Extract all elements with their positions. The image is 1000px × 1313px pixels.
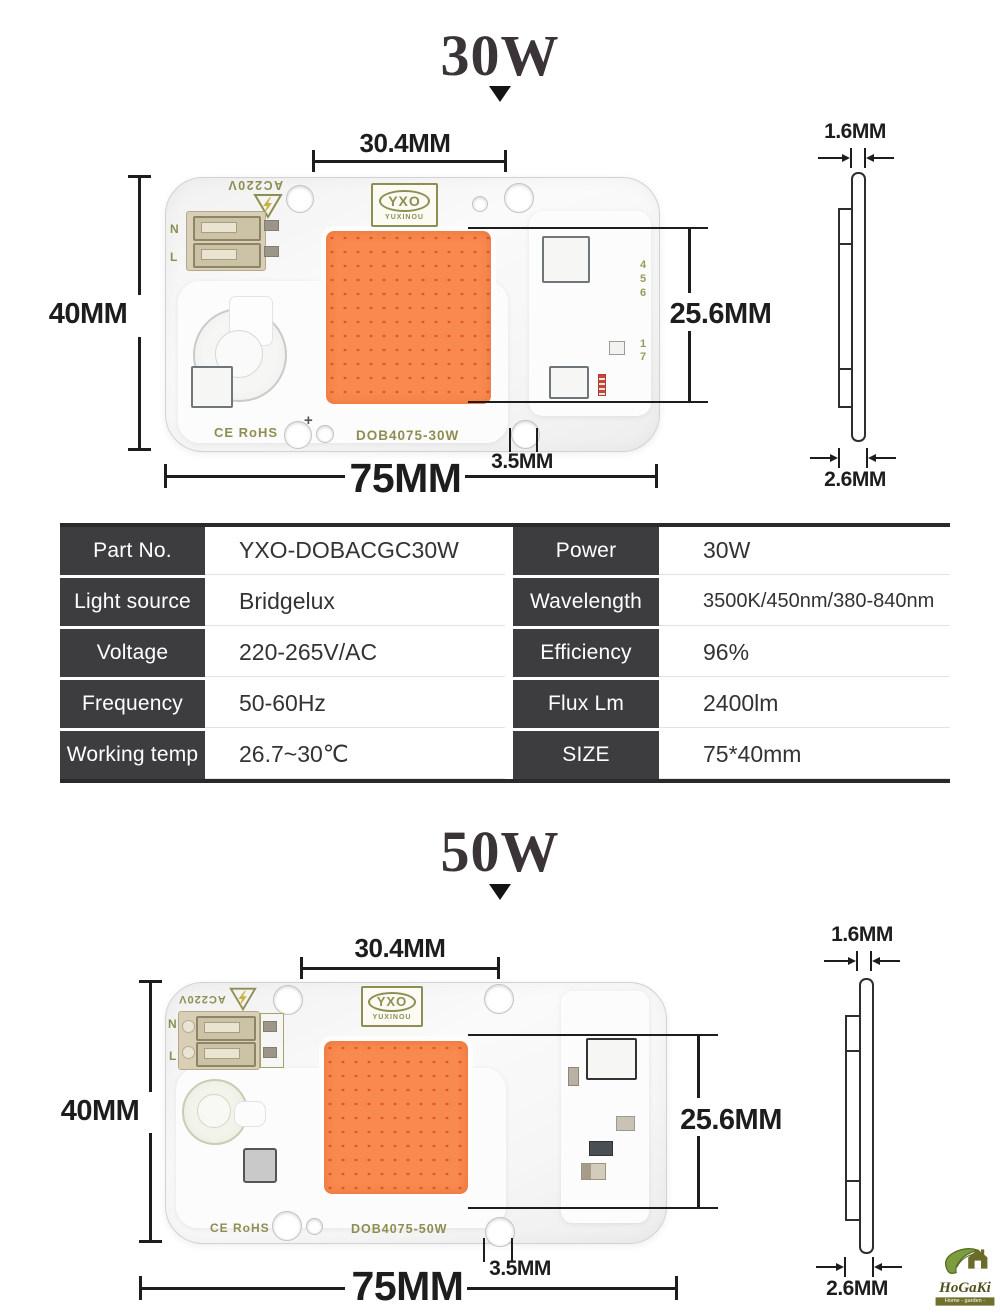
dim-line-bottom [139, 1287, 345, 1290]
dim-label-30-4mm: 30.4MM [325, 933, 475, 964]
high-voltage-triangle-icon [228, 986, 258, 1012]
dim-leader-top [468, 227, 708, 229]
dim-line-bottom [164, 475, 345, 478]
digit: 7 [636, 351, 650, 364]
component-chip [542, 236, 590, 283]
terminal-metal-tab [204, 1048, 240, 1059]
spec-label: Efficiency [513, 629, 659, 677]
digit: 1 [636, 338, 650, 351]
side-view-pcb [851, 172, 866, 442]
digit: 4 [636, 258, 650, 272]
terminal-pin [264, 220, 279, 231]
mounting-hole [286, 185, 314, 213]
brand-tagline: Home - garden - kitchen [936, 1297, 995, 1305]
resistor-component [598, 374, 606, 396]
spec-label: Power [513, 527, 659, 575]
dim-label-1-6mm: 1.6MM [815, 120, 895, 144]
terminal-slot [193, 216, 261, 241]
dim-line-top [300, 967, 500, 970]
dim-label-25-6mm: 25.6MM [656, 1104, 806, 1137]
dim-line-right [688, 331, 691, 403]
terminal-block [178, 1011, 260, 1070]
terminal-wire-hole [182, 1020, 195, 1033]
table-row: Part No. YXO-DOBACGC30W Power 30W [60, 527, 950, 575]
table-row: Light source Bridgelux Wavelength 3500K/… [60, 578, 950, 626]
small-hole [472, 196, 488, 212]
section-title-50w: 50W [350, 818, 650, 885]
part-number-marking: DOB4075-50W [351, 1222, 447, 1236]
terminal-metal-tab [201, 249, 237, 260]
part-number-marking: DOB4075-30W [356, 428, 459, 443]
component-chip [586, 1038, 637, 1080]
small-hole [306, 1218, 323, 1235]
small-component [581, 1163, 606, 1180]
capacitor-top [197, 1094, 231, 1128]
dim-arrows-bottom [816, 1257, 902, 1277]
dim-leader-bottom [468, 401, 708, 403]
dim-tick [312, 150, 315, 172]
component-chip [549, 366, 589, 399]
dim-label-2-6mm: 2.6MM [812, 1277, 902, 1301]
dim-tick [497, 957, 500, 979]
table-row: Frequency 50-60Hz Flux Lm 2400lm [60, 680, 950, 728]
yxo-logo: YXO YUXINOU [371, 183, 438, 227]
spec-label: Wavelength [513, 578, 659, 626]
digit: 5 [636, 272, 650, 286]
dim-label-40mm: 40MM [40, 298, 136, 331]
terminal-slot [196, 1042, 256, 1067]
dim-line-left [149, 1133, 152, 1242]
led-board-30w: AC220V N L YXO YUXINOU [165, 177, 660, 452]
yuxinou-logo-subtext: YUXINOU [373, 1014, 412, 1021]
dim-line-right [697, 1136, 700, 1209]
table-gap [505, 578, 513, 626]
component-chip [243, 1148, 277, 1183]
spec-label: Flux Lm [513, 680, 659, 728]
terminal-slot [196, 1016, 256, 1041]
mounting-hole [504, 183, 534, 213]
terminal-l-label: L [170, 250, 177, 264]
spec-label: Working temp [60, 731, 205, 779]
dim-line-left [149, 980, 152, 1092]
terminal-block [186, 211, 266, 271]
brand-name: HoGaKi [930, 1280, 1000, 1296]
component-chip [191, 366, 233, 408]
spec-label: Voltage [60, 629, 205, 677]
table-gap [505, 527, 513, 575]
dim-leader-bottom [468, 1207, 718, 1209]
spec-value: 50-60Hz [205, 680, 505, 728]
dim-bracket [536, 428, 538, 452]
small-component [609, 341, 625, 355]
terminal-wire-hole [182, 1046, 195, 1059]
led-board-50w: AC220V N L YXO YUXINOU [165, 982, 667, 1244]
spec-label: Part No. [60, 527, 205, 575]
dim-label-75mm: 75MM [350, 1263, 465, 1310]
yuxinou-logo-subtext: YUXINOU [385, 214, 424, 221]
mounting-hole [484, 984, 514, 1014]
terminal-l-label: L [169, 1049, 176, 1063]
terminal-n-label: N [170, 222, 179, 236]
product-spec-sheet: 30W 30.4MM 40MM AC220V N L [0, 0, 1000, 1313]
table-gap [505, 629, 513, 677]
yxo-logo-text: YXO [368, 992, 416, 1012]
spec-label: SIZE [513, 731, 659, 779]
figure-50w: 30.4MM 40MM AC220V N L [0, 905, 1000, 1313]
terminal-pin [264, 246, 279, 257]
dim-line-right [688, 227, 691, 293]
down-arrow-icon [489, 884, 511, 900]
silkscreen-ac220v: AC220V [176, 993, 228, 1005]
spec-table: Part No. YXO-DOBACGC30W Power 30W Light … [60, 523, 950, 783]
cob-led-emitter [326, 231, 491, 404]
ce-rohs-marking: CE RoHS [210, 1221, 270, 1235]
dim-arrows-bottom [810, 448, 896, 468]
spec-value: 2400lm [659, 680, 950, 728]
spec-value: YXO-DOBACGC30W [205, 527, 505, 575]
dim-bracket [509, 428, 511, 452]
down-arrow-icon [489, 86, 511, 102]
terminal-pin [263, 1047, 277, 1058]
dim-cap [139, 1240, 162, 1243]
silkscreen-ac220v: AC220V [218, 178, 292, 192]
spec-value: 30W [659, 527, 950, 575]
small-component [568, 1067, 579, 1086]
spec-value: 96% [659, 629, 950, 677]
dim-line-bottom [467, 1287, 678, 1290]
terminal-metal-tab [204, 1022, 240, 1033]
dim-arrows-top [824, 951, 900, 971]
yxo-logo-text: YXO [379, 190, 430, 212]
dim-label-3-5mm: 3.5MM [482, 450, 562, 474]
silkscreen-digits-17: 1 7 [636, 338, 650, 364]
mounting-hole [273, 985, 303, 1015]
spec-value: 3500K/450nm/380-840nm [659, 578, 950, 626]
small-component [616, 1116, 635, 1131]
spec-value: 26.7~30℃ [205, 731, 505, 779]
dim-label-25-6mm: 25.6MM [648, 298, 793, 331]
table-gap [505, 731, 513, 779]
leaf-house-icon [941, 1243, 989, 1275]
dim-tick [300, 957, 303, 979]
dim-arrows-top [818, 148, 894, 168]
terminal-slot [193, 243, 261, 268]
cob-led-emitter [324, 1041, 468, 1194]
dim-tick [655, 464, 658, 488]
yxo-logo: YXO YUXINOU [361, 986, 423, 1027]
mounting-hole [284, 421, 312, 449]
dim-line-right [697, 1034, 700, 1098]
table-row: Voltage 220-265V/AC Efficiency 96% [60, 629, 950, 677]
figure-30w: 30.4MM 40MM AC220V N L [0, 110, 1000, 520]
small-component [589, 1141, 613, 1156]
dim-line-bottom [465, 475, 657, 478]
dim-label-30-4mm: 30.4MM [330, 128, 480, 159]
side-view-pcb [859, 978, 874, 1254]
mounting-hole [272, 1211, 302, 1241]
silkscreen-digits-456: 4 5 6 [636, 258, 650, 300]
ce-rohs-marking: CE RoHS [214, 425, 278, 440]
dim-label-75mm: 75MM [348, 455, 463, 502]
section-title-30w: 30W [350, 22, 650, 89]
capacitor-handle [234, 1101, 266, 1127]
table-row: Working temp 26.7~30℃ SIZE 75*40mm [60, 731, 950, 779]
hogaki-logo: HoGaKi Home - garden - kitchen [930, 1243, 1000, 1309]
dim-cap [128, 448, 151, 451]
dim-tick [675, 1276, 678, 1300]
table-gap [505, 680, 513, 728]
dim-leader-top [468, 1034, 718, 1036]
dim-tick [504, 150, 507, 172]
spec-label: Frequency [60, 680, 205, 728]
terminal-n-label: N [168, 1017, 177, 1031]
dim-line-left [138, 337, 141, 450]
spec-value: 75*40mm [659, 731, 950, 779]
dim-label-1-6mm: 1.6MM [822, 923, 902, 947]
spec-value: 220-265V/AC [205, 629, 505, 677]
spec-label: Light source [60, 578, 205, 626]
terminal-metal-tab [201, 222, 237, 233]
dim-label-3-5mm: 3.5MM [475, 1257, 565, 1281]
ic-area-panel [561, 991, 649, 1223]
dim-label-2-6mm: 2.6MM [810, 468, 900, 492]
dim-line-left [138, 175, 141, 295]
dim-line-top [312, 160, 507, 163]
dim-label-40mm: 40MM [52, 1095, 148, 1128]
terminal-pin [263, 1021, 277, 1032]
small-hole [316, 425, 334, 443]
spec-value: Bridgelux [205, 578, 505, 626]
